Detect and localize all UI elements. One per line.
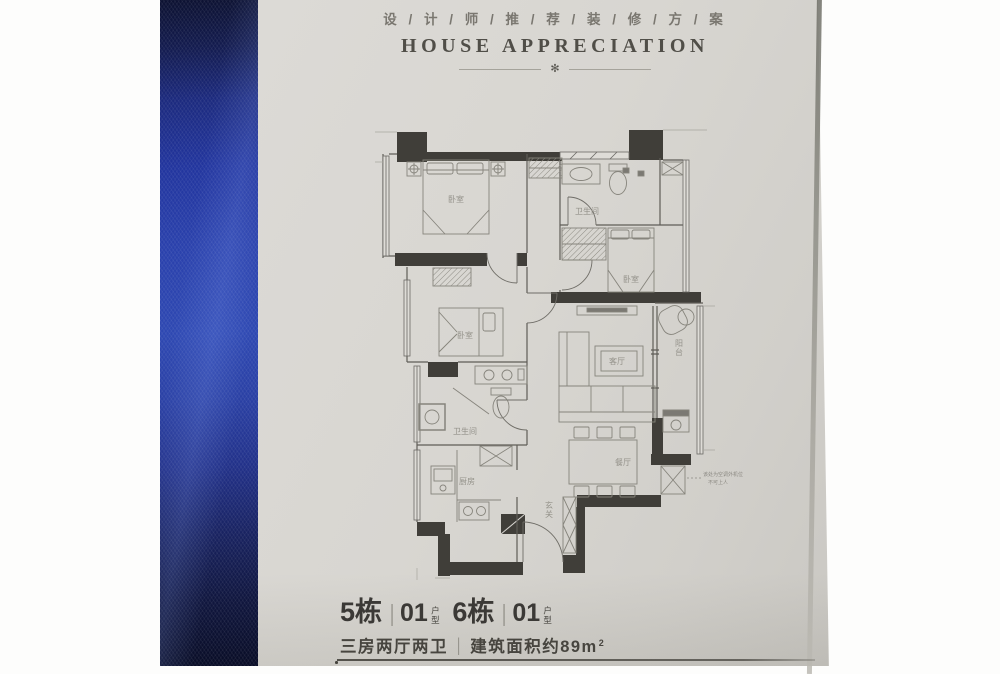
- window-kitchen-left: [414, 450, 420, 520]
- area-spec: 建筑面积约89m2: [470, 633, 605, 657]
- stove-icon: [459, 502, 489, 520]
- window-bedroom1-left: [383, 156, 389, 256]
- label-bedroom-right: 卧室: [623, 274, 639, 284]
- floor-plan: 该处为空调外机位 不可上人 卧室 卫生间 卧室 卧室 卫生间 厨房 客厅 餐厅 …: [355, 110, 775, 580]
- title-divider: ✻: [355, 64, 755, 75]
- building-6-label: 6栋: [452, 599, 494, 626]
- washing-machine-icon: [419, 404, 445, 430]
- label-bathroom-top: 卫生间: [575, 206, 599, 216]
- window-right-top: [683, 160, 689, 292]
- divider-bar: |: [457, 635, 461, 656]
- footer-rule-line: [337, 659, 815, 661]
- wardrobe-icon: [529, 158, 562, 178]
- bath-accessory: [623, 168, 629, 173]
- door-bath2: [497, 400, 527, 430]
- wardrobe-icon: [562, 228, 606, 260]
- area-text: 建筑面积约89m: [470, 638, 598, 656]
- header: 设 / 计 / 师 / 推 / 荐 / 装 / 修 / 方 / 案 HOUSE …: [355, 8, 755, 75]
- page-title-chinese: 设 / 计 / 师 / 推 / 荐 / 装 / 修 / 方 / 案: [355, 8, 755, 28]
- unit-title-line: 5栋 | 01 户型 6栋 | 01 户型: [340, 599, 605, 626]
- footer-rule-dot: [335, 661, 338, 664]
- footer: 5栋 | 01 户型 6栋 | 01 户型 三房两厅两卫 | 建筑面积约89m2: [340, 599, 605, 657]
- entry-hatch-column: [563, 497, 576, 553]
- bathroom-counter-icon: [475, 366, 527, 384]
- ac-note: 该处为空调外机位 不可上人: [687, 471, 743, 486]
- label-balcony: 阳台: [675, 339, 684, 357]
- label-bathroom-lower: 卫生间: [453, 426, 477, 436]
- unit-type-suffix: 户型: [543, 606, 552, 625]
- divider-rule-right: [569, 69, 651, 70]
- furniture: [407, 158, 694, 553]
- window-bedroom3-left: [404, 280, 410, 356]
- building-5-label: 5栋: [340, 599, 382, 626]
- wardrobe-icon: [433, 268, 471, 286]
- label-bedroom-middle: 卧室: [457, 330, 473, 340]
- layout-spec: 三房两厅两卫: [340, 633, 448, 657]
- fridge-flue-box: [480, 446, 512, 466]
- unit-01-label: 01: [512, 601, 540, 626]
- window-bath1-top: [560, 152, 629, 159]
- shaft-box: [662, 162, 683, 175]
- toilet-icon: [491, 388, 511, 418]
- unit-01-label: 01: [400, 601, 428, 626]
- divider-bar: |: [503, 602, 507, 625]
- shower-partition: [453, 388, 489, 414]
- page-title-english: HOUSE APPRECIATION: [355, 35, 755, 58]
- window-balcony-right: [697, 306, 703, 454]
- label-bedroom-top-left: 卧室: [448, 194, 464, 204]
- door-bedroom1: [487, 253, 517, 283]
- divider-rule-left: [459, 69, 541, 70]
- door-entry: [523, 522, 563, 562]
- label-entry: 玄关: [545, 500, 554, 519]
- label-living-room: 客厅: [609, 356, 625, 366]
- washing-machine-icon: [663, 410, 689, 432]
- bath-accessory: [638, 171, 644, 176]
- bathroom-sink-icon: [562, 164, 600, 184]
- spec-line: 三房两厅两卫 | 建筑面积约89m2: [340, 633, 605, 657]
- sofa-icon: [559, 332, 655, 422]
- kitchen-sink-icon: [431, 466, 455, 494]
- unit-type-suffix: 户型: [431, 606, 440, 625]
- lounge-chair-icon: [655, 302, 694, 337]
- tv-console-icon: [577, 306, 637, 315]
- divider-bar: |: [390, 602, 394, 625]
- ac-note-line1: 该处为空调外机位: [703, 471, 743, 478]
- ac-note-line2: 不可上人: [708, 479, 728, 486]
- ornament-icon: ✻: [550, 64, 559, 75]
- label-kitchen: 厨房: [459, 476, 475, 486]
- ac-unit-box: [661, 466, 685, 494]
- area-superscript: 2: [599, 638, 606, 648]
- label-dining-room: 餐厅: [615, 458, 631, 467]
- door-bedroom2: [562, 260, 592, 290]
